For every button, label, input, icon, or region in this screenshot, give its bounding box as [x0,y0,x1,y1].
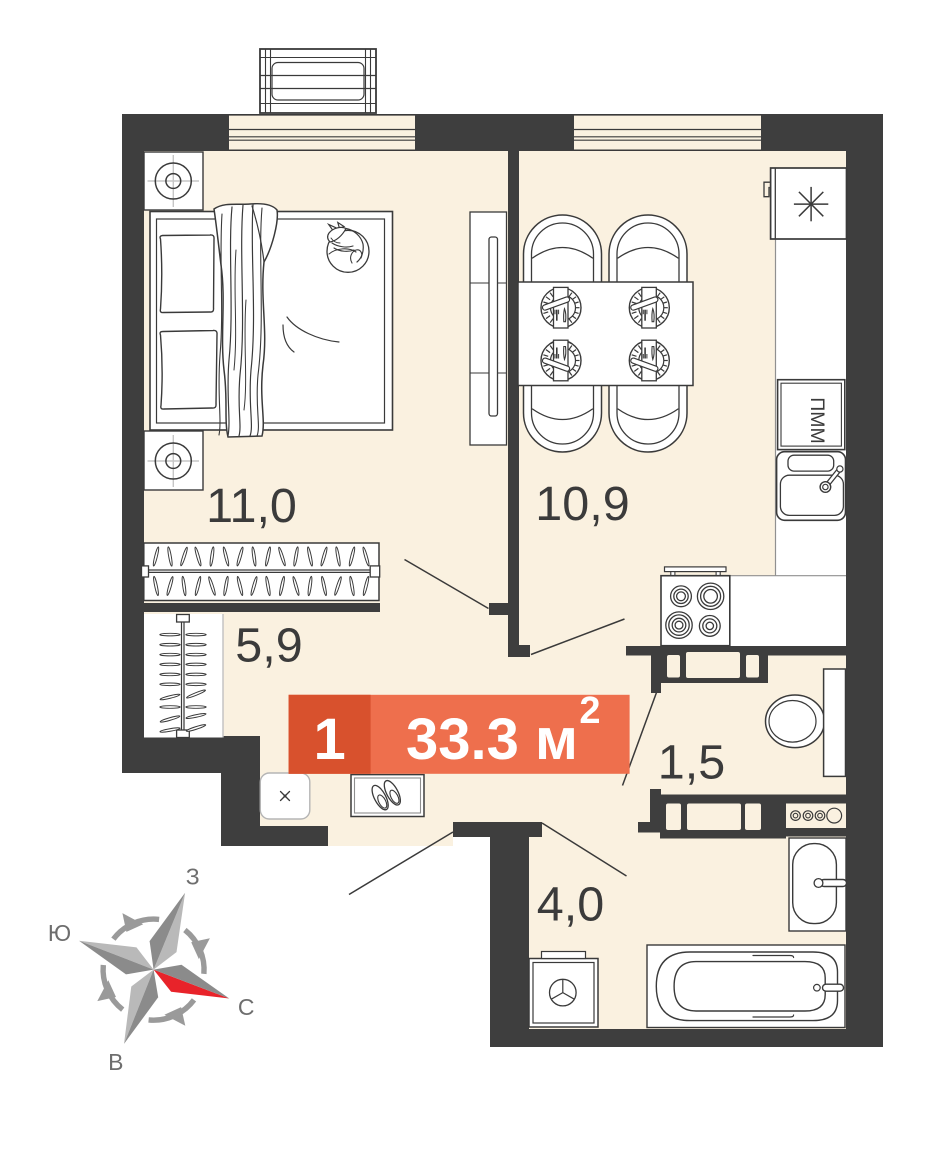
svg-text:11,0: 11,0 [206,479,297,533]
svg-text:З: З [186,864,200,890]
svg-text:С: С [238,994,255,1020]
svg-text:4,0: 4,0 [537,878,604,932]
svg-text:33.3 м: 33.3 м [406,707,578,772]
svg-text:ПММ: ПММ [806,397,828,444]
svg-text:Ю: Ю [48,920,71,946]
svg-text:1,5: 1,5 [658,736,725,790]
svg-text:5,9: 5,9 [235,619,302,673]
svg-text:1: 1 [313,707,345,772]
svg-text:В: В [108,1049,123,1075]
svg-text:10,9: 10,9 [535,477,629,531]
svg-text:2: 2 [579,690,600,732]
